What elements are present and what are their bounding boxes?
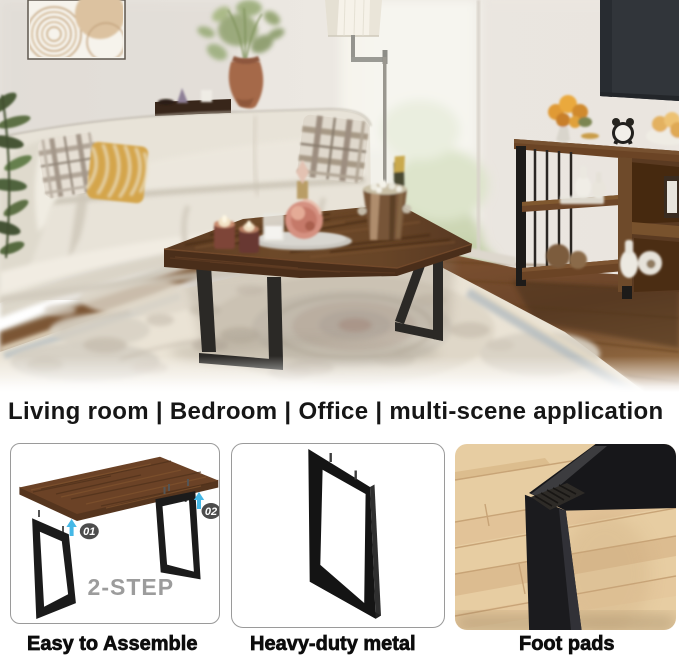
svg-text:01: 01 [83,526,95,538]
svg-text:2-STEP: 2-STEP [88,574,175,600]
svg-text:02: 02 [205,506,217,518]
